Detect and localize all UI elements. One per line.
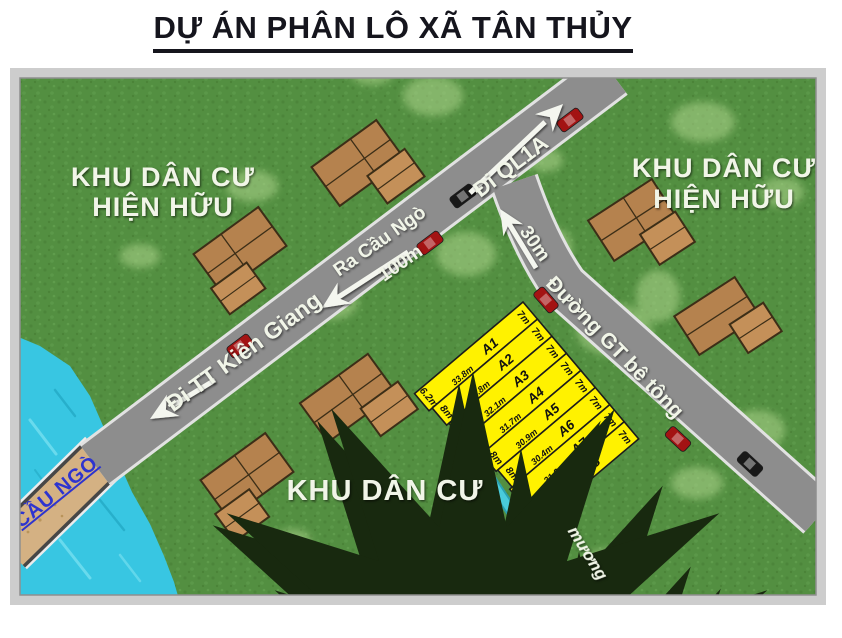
area-label-right-2: HIỆN HỮU	[653, 183, 794, 214]
page: DỰ ÁN PHÂN LÔ XÃ TÂN THỦY	[0, 0, 842, 638]
area-label-bottom: KHU DÂN CƯ	[287, 473, 484, 507]
area-label-left-2: HIỆN HỮU	[92, 191, 233, 222]
map: 7mA133.8m6.2m7mA232.8m8m7mA332.1m8m7mA43…	[0, 0, 842, 638]
area-label-right-1: KHU DÂN CƯ	[632, 152, 816, 183]
area-label-left-1: KHU DÂN CƯ	[71, 161, 255, 192]
